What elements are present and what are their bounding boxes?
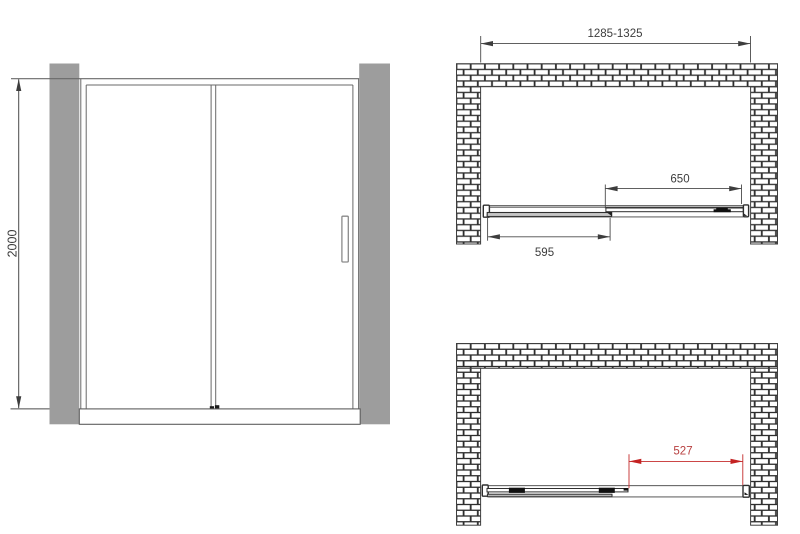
svg-text:527: 527 [673,445,692,457]
svg-text:650: 650 [670,173,689,185]
svg-text:595: 595 [535,247,554,259]
svg-text:2000: 2000 [5,230,19,258]
svg-text:1285-1325: 1285-1325 [588,28,643,40]
